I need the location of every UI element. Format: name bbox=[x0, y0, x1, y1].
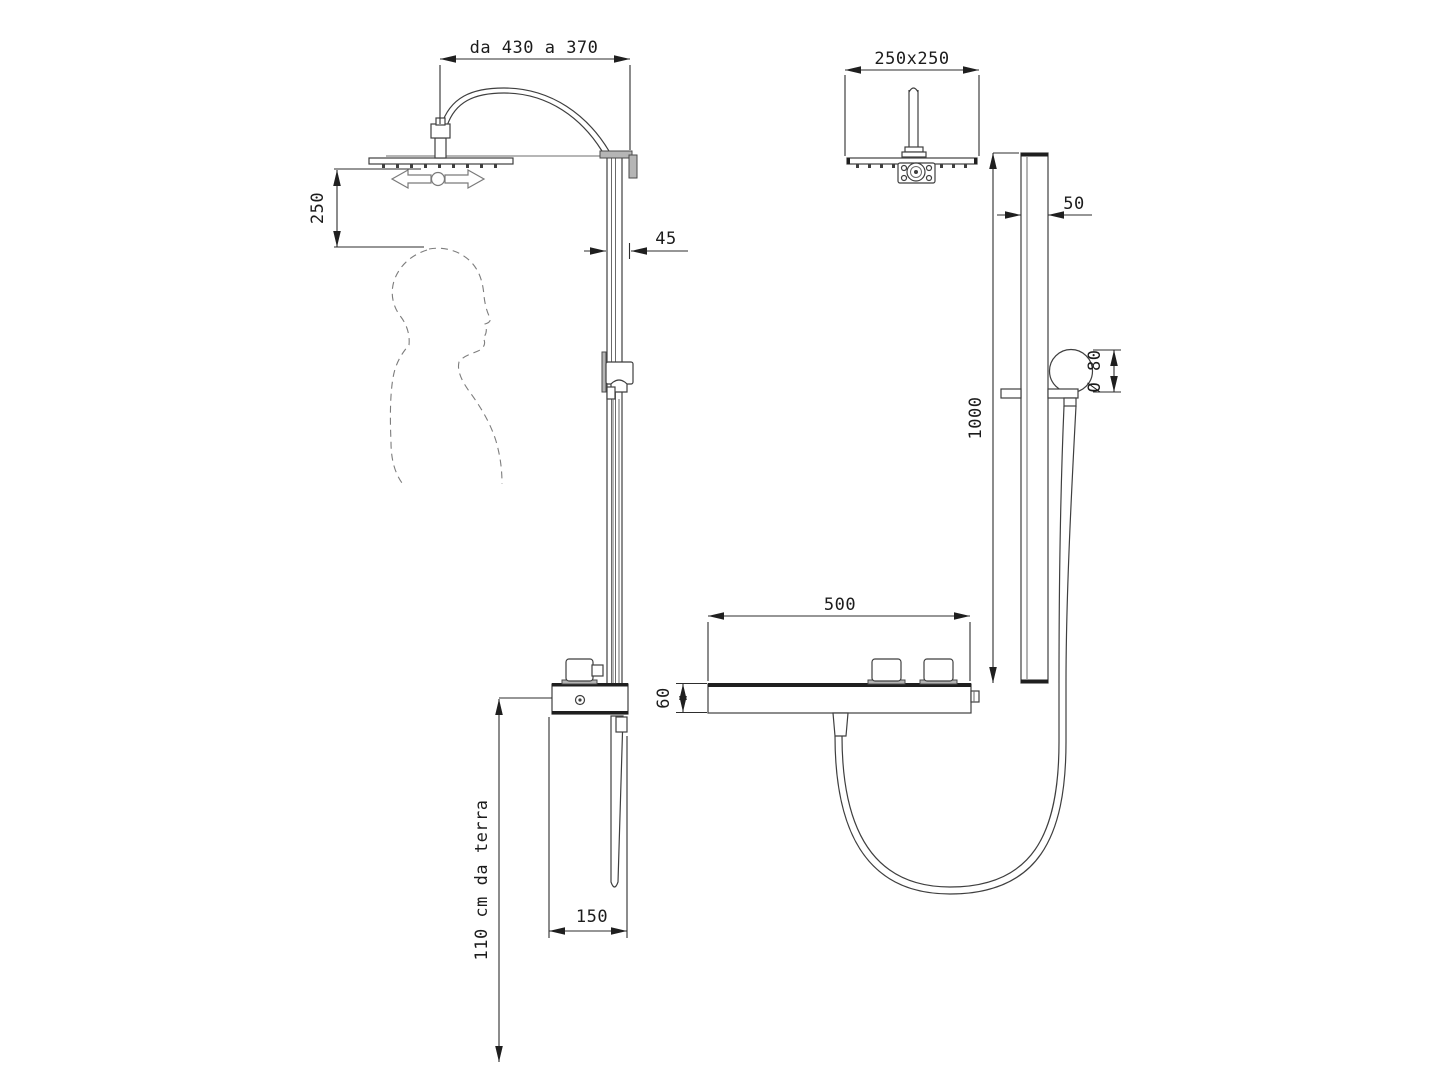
handshower-bracket bbox=[1048, 389, 1078, 398]
side-view: da 430 a 370 250 45 110 cm da terra bbox=[308, 38, 688, 1062]
handshower-front bbox=[1048, 350, 1093, 684]
dim-column-depth: 45 bbox=[584, 229, 688, 259]
slider-tab bbox=[1001, 389, 1021, 398]
dim-label-shelf-thickness: 60 bbox=[654, 687, 674, 708]
control-knob-side bbox=[566, 659, 593, 681]
dim-label-rail-height: 1000 bbox=[966, 397, 986, 440]
dim-head-size: 250x250 bbox=[845, 49, 979, 156]
mounting-flange bbox=[898, 163, 935, 183]
control-knob-right bbox=[924, 659, 953, 681]
dim-label-handshower-diameter: Ø 80 bbox=[1085, 350, 1105, 393]
spray-nozzles bbox=[382, 164, 497, 168]
dim-label-column-depth: 45 bbox=[655, 229, 676, 249]
column-top-cap bbox=[600, 151, 632, 158]
wall-bracket bbox=[629, 155, 637, 178]
dim-rail-height: 1000 bbox=[966, 153, 1019, 683]
dim-label-head-size: 250x250 bbox=[874, 49, 949, 69]
dim-label-valve-width: 150 bbox=[576, 907, 608, 927]
flexible-hose bbox=[835, 683, 1066, 894]
handshower-wand-side bbox=[611, 716, 627, 887]
dim-label-rail-width: 50 bbox=[1063, 194, 1084, 214]
dim-label-shelf-width: 500 bbox=[824, 595, 856, 615]
front-view: 250x250 1000 50 Ø 80 500 bbox=[654, 49, 1121, 894]
hose-connector bbox=[833, 713, 848, 736]
valve-shelf-front bbox=[708, 659, 979, 736]
rail-column-front bbox=[1001, 153, 1048, 683]
user-silhouette bbox=[390, 248, 502, 484]
dim-label-arm-reach: da 430 a 370 bbox=[470, 38, 599, 58]
drawing-canvas: da 430 a 370 250 45 110 cm da terra bbox=[0, 0, 1440, 1080]
dim-label-mounting-height: 110 cm da terra bbox=[472, 799, 492, 960]
control-knob-left bbox=[872, 659, 901, 681]
left-right-swivel-arrows-icon bbox=[392, 170, 484, 188]
shower-arm-curve bbox=[441, 88, 609, 151]
knob-side-nub bbox=[592, 665, 603, 676]
dim-shelf-thickness: 60 bbox=[654, 684, 707, 713]
valve-body-side bbox=[552, 659, 628, 715]
side-outlet bbox=[971, 691, 979, 702]
dim-label-head-clearance: 250 bbox=[308, 192, 328, 224]
dim-handshower-diameter: Ø 80 bbox=[1085, 350, 1121, 393]
dim-mounting-height: 110 cm da terra bbox=[472, 698, 552, 1062]
overhead-shower-side bbox=[369, 118, 608, 168]
technical-drawing-page: da 430 a 370 250 45 110 cm da terra bbox=[0, 0, 1440, 1080]
overhead-shower-front bbox=[847, 88, 977, 183]
